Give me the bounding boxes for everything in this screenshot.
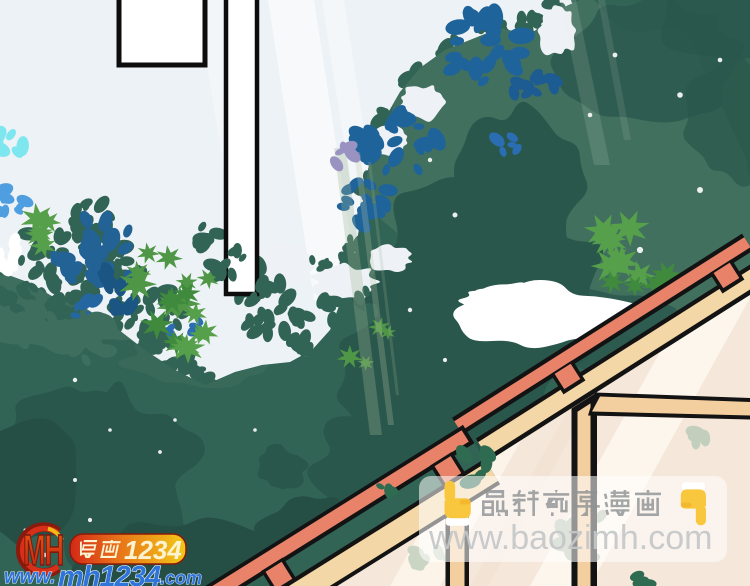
svg-text:.com: .com xyxy=(160,568,202,586)
svg-text:www.baozimh.com: www.baozimh.com xyxy=(428,519,712,557)
svg-text:mh1234: mh1234 xyxy=(58,561,161,586)
svg-text:www.: www. xyxy=(4,566,55,586)
